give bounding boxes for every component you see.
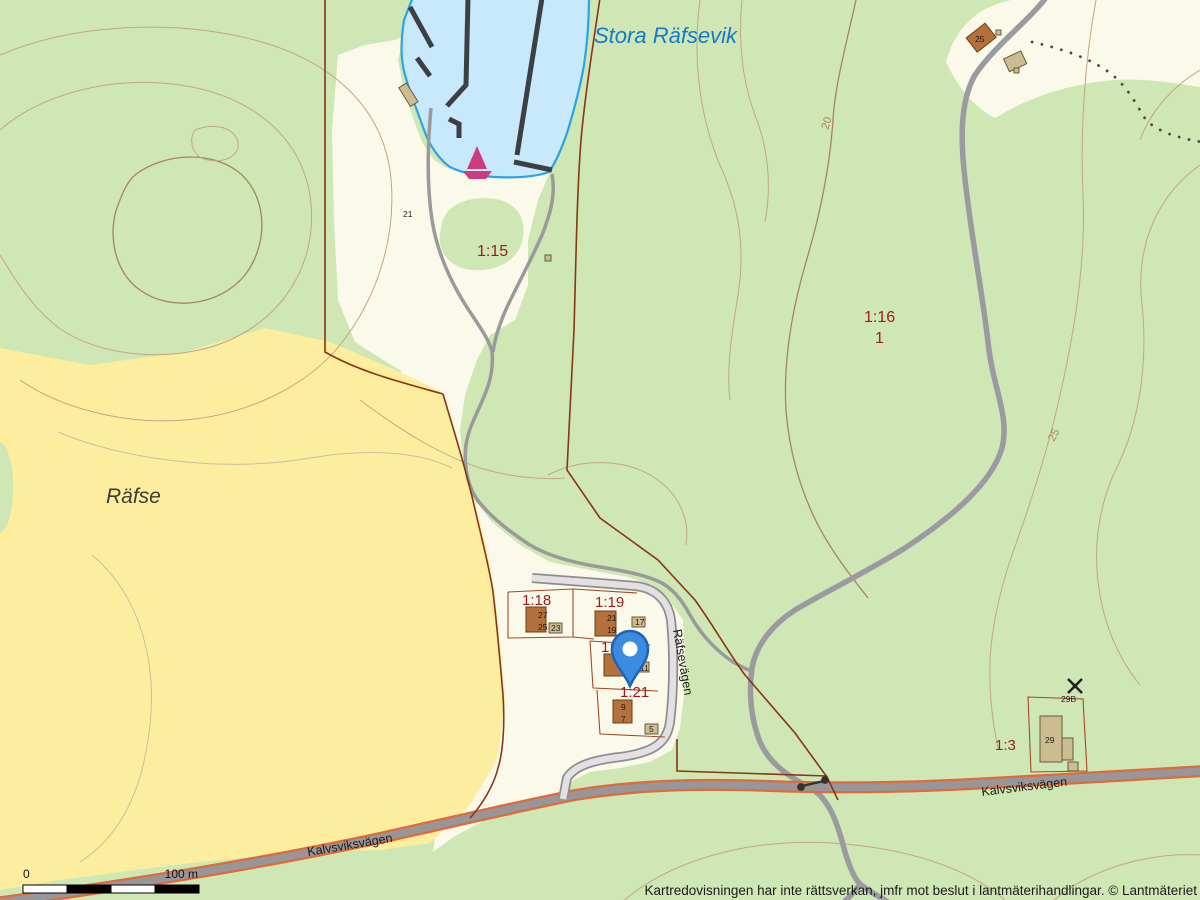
parcel-label-13: 1:3 <box>995 737 1016 754</box>
building <box>1068 762 1078 771</box>
svg-text:17: 17 <box>635 617 645 627</box>
parcel-label-116-sub: 1 <box>875 330 884 347</box>
building <box>545 255 551 261</box>
parcel-label-115: 1:15 <box>477 243 508 260</box>
pin-hole <box>623 642 638 657</box>
svg-text:27: 27 <box>538 610 548 620</box>
svg-text:21: 21 <box>403 209 413 219</box>
water-name-label: Stora Räfsevik <box>594 23 738 48</box>
field-area <box>0 328 505 890</box>
svg-text:29: 29 <box>1045 735 1055 745</box>
svg-text:21: 21 <box>607 613 617 623</box>
svg-text:5: 5 <box>649 724 654 734</box>
scale-zero: 0 <box>23 867 30 881</box>
map-viewport[interactable]: Stora Räfsevik Räfse 1:15 1:16 1 1:18 1:… <box>0 0 1200 900</box>
building <box>1062 738 1073 760</box>
building <box>996 30 1001 35</box>
scale-max: 100 m <box>165 867 198 881</box>
svg-text:25: 25 <box>538 622 548 632</box>
parcel-label-116: 1:16 <box>864 309 895 326</box>
parcel-label-121: 1:21 <box>620 684 649 701</box>
svg-text:9: 9 <box>621 702 626 712</box>
svg-text:19: 19 <box>607 625 617 635</box>
svg-text:23: 23 <box>551 623 561 633</box>
copyright-text: Kartredovisningen har inte rättsverkan, … <box>645 883 1198 898</box>
svg-text:25: 25 <box>975 34 985 44</box>
parcel-label-118: 1:18 <box>522 592 551 609</box>
map-canvas[interactable]: Stora Räfsevik Räfse 1:15 1:16 1 1:18 1:… <box>0 0 1200 900</box>
building <box>1014 68 1019 73</box>
area-name-label: Räfse <box>106 485 161 508</box>
parcel-label-119: 1:19 <box>595 594 624 611</box>
svg-text:29B: 29B <box>1061 694 1076 704</box>
svg-text:7: 7 <box>621 714 626 724</box>
